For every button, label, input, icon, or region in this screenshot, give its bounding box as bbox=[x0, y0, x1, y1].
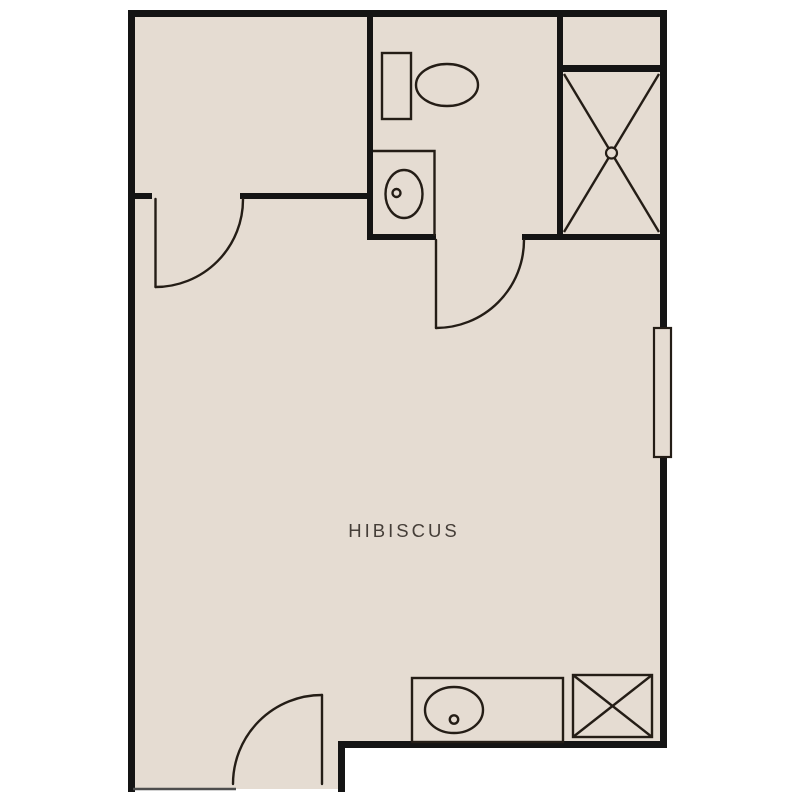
wall-bathroom-bottom-right bbox=[522, 234, 667, 240]
floor-area bbox=[131, 13, 664, 789]
wall-shower-divider bbox=[557, 65, 667, 72]
floor-plan: HIBISCUS bbox=[0, 0, 800, 800]
wall-right-lower bbox=[660, 454, 667, 748]
wall-shower-left bbox=[557, 13, 563, 240]
wall-bathroom-bottom-left bbox=[367, 234, 436, 240]
wall-bathroom-left bbox=[367, 13, 373, 240]
wall-step bbox=[338, 741, 345, 792]
window-icon bbox=[654, 328, 671, 457]
wall-right-upper bbox=[660, 10, 667, 331]
wall-interior-right bbox=[240, 193, 373, 199]
wall-top bbox=[128, 10, 667, 17]
wall-interior-left-stub bbox=[131, 193, 152, 199]
wall-left bbox=[128, 10, 135, 792]
shower-drain bbox=[606, 148, 617, 159]
room-label: HIBISCUS bbox=[348, 520, 459, 541]
